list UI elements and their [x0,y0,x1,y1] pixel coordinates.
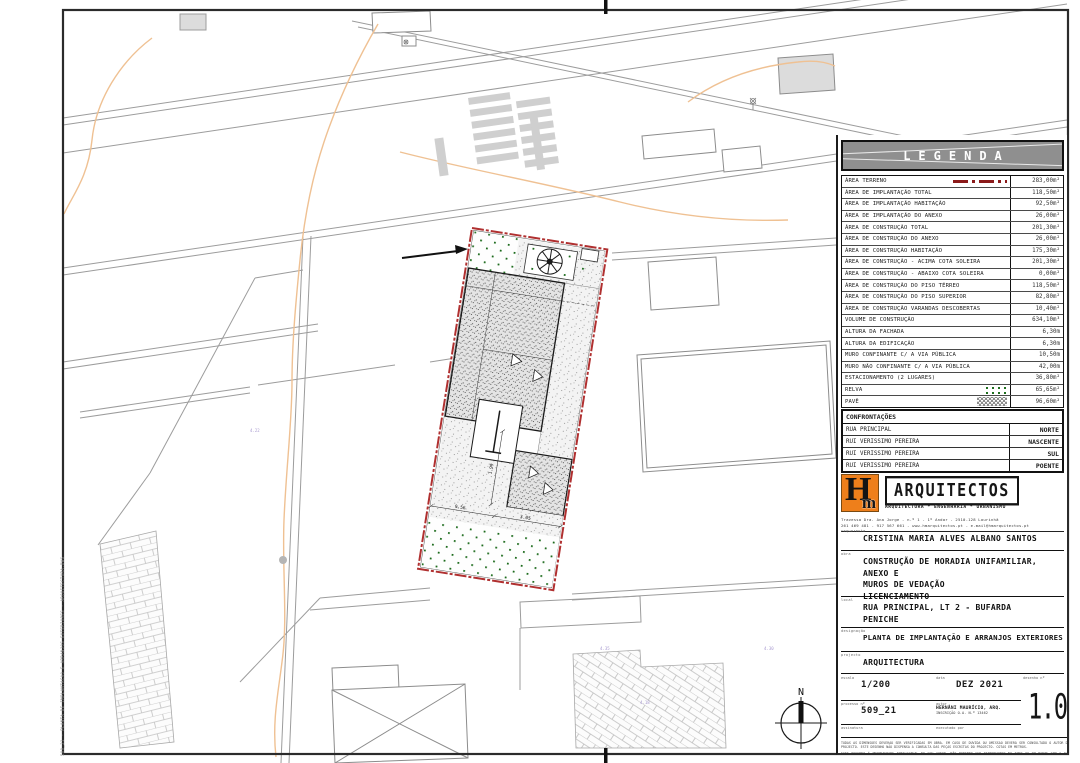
confrontacao-row: RUI VERISSIMO PEREIRANASCENTE [843,436,1062,448]
svg-text:4.30: 4.30 [764,646,774,651]
firm-tagline: ARQUITECTURA * ENGENHARIA * URBANISMO [885,505,1006,510]
legend-row: ÁREA DE IMPLANTAÇÃO TOTAL118,50m² [842,188,1063,200]
legend-row: ÁREA DE CONSTRUÇÃO - ACIMA COTA SOLEIRA2… [842,257,1063,269]
legend-row: ÁREA DE CONSTRUÇÃO VARANDAS DESCOBERTAS1… [842,304,1063,316]
svg-text:4.18: 4.18 [640,700,650,705]
confrontacao-row: RUI VERISSIMO PEREIRASUL [843,448,1062,460]
client-name: CRISTINA MARIA ALVES ALBANO SANTOS [841,533,1064,545]
project-type: ARQUITECTURA [841,657,1064,669]
hm-logo-icon: H m [841,474,879,512]
drawing-sheet: 9.56 3.05 1.99 4.22 4.35 4.18 4.30 N 509… [0,0,1080,763]
work-section: obra CONSTRUÇÃO DE MORADIA UNIFAMILIAR, … [841,552,1064,597]
legend-row: ÁREA TERRENO283,00m² [842,176,1063,188]
firm-logo: H m ARQUITECTOS ARQUITECTURA * ENGENHARI… [841,474,1064,516]
work-line1: CONSTRUÇÃO DE MORADIA UNIFAMILIAR, ANEXO… [841,556,1064,579]
legend-row: MURO NÃO CONFINANTE C/ A VIA PÚBLICA42,0… [842,362,1063,374]
file-stamp: 509_21 - PLANTA DE IMPLANTACAO E ARRANJO… [60,557,65,756]
legend-row: ÁREA DE CONSTRUÇÃO DO ANEXO26,00m² [842,234,1063,246]
location-section: local RUA PRINCIPAL, LT 2 - BUFARDA PENI… [841,598,1064,628]
drawing-title: PLANTA DE IMPLANTAÇÃO E ARRANJOS EXTERIO… [841,633,1064,642]
annex-footprint [507,451,572,516]
process-number: 509_21 [841,706,933,716]
legend-row: ÁREA DE IMPLANTAÇÃO DO ANEXO26,00m² [842,211,1063,223]
legend-row: ÁREA DE CONSTRUÇÃO DO PISO SUPERIOR82,80… [842,292,1063,304]
firm-name: ARQUITECTOS [885,476,1019,506]
legend-row: MURO CONFINANTE C/ A VIA PÚBLICA10,50m [842,350,1063,362]
author-registration: INSCRIÇÃO O.A. N.º 13462 [936,711,1021,715]
client-section: requerente CRISTINA MARIA ALVES ALBANO S… [841,529,1064,551]
front-grass [469,231,519,275]
address-line2: 261 469 481 - 917 567 661 - www.hmarquit… [841,523,1064,529]
project-section: projecto ARQUITECTURA [841,653,1064,674]
confrontacao-row: RUI VERISSIMO PEREIRAPOENTE [843,460,1062,471]
confrontacao-row: RUA PRINCIPALNORTE [843,424,1062,436]
fine-print-1: TODAS AS DIMENSÕES DEVERÃO SER VERIFICAD… [841,741,1069,749]
title-block: LEGENDA ÁREA TERRENO283,00m² ÁREA DE IMP… [836,135,1069,755]
legend-header: LEGENDA [841,140,1064,171]
svg-text:4.22: 4.22 [250,428,260,433]
legend-row: ALTURA DA FACHADA6,30m [842,327,1063,339]
crosswalk [434,87,559,177]
work-line2: MUROS DE VEDAÇÃO [841,579,1064,591]
north-label: N [798,687,804,698]
terreno-boundary-symbol [953,180,1007,183]
confrontacoes-title: CONFRONTAÇÕES [843,411,1062,424]
legend-row: ÁREA DE CONSTRUÇÃO HABITAÇÃO175,30m² [842,246,1063,258]
svg-text:4.35: 4.35 [600,646,610,651]
grass-symbol [985,386,1007,394]
fine-print: TODAS AS DIMENSÕES DEVERÃO SER VERIFICAD… [841,741,1069,755]
north-arrow-icon: N [775,687,827,749]
legend-row: ALTURA DA EDIFICAÇÃO6,30m [842,338,1063,350]
confrontacoes-table: CONFRONTAÇÕES RUA PRINCIPALNORTE RUI VER… [841,409,1064,473]
legend-row: ÁREA DE IMPLANTAÇÃO HABITAÇÃO92,50m² [842,199,1063,211]
meta-grid: escala 1/200 data DEZ 2021 desenho nº 1.… [841,675,1064,739]
date-value: DEZ 2021 [936,680,1021,690]
sheet-number: 1.00 [1028,686,1064,727]
location-line1: RUA PRINCIPAL, LT 2 - BUFARDA [841,602,1064,614]
legend-row: ÁREA DE CONSTRUÇÃO - ABAIXO COTA SOLEIRA… [842,269,1063,281]
entrance-arrow [402,245,468,258]
legend-row: ÁREA DE CONSTRUÇÃO DO PISO TÉRREO118,50m… [842,280,1063,292]
legend-row: ESTACIONAMENTO (2 LUGARES)36,80m² [842,373,1063,385]
location-line2: PENICHE [841,614,1064,626]
pave-hatch-symbol [977,397,1007,406]
legend-row: VOLUME DE CONSTRUÇÃO634,10m³ [842,315,1063,327]
legend-row: ÁREA DE CONSTRUÇÃO TOTAL201,30m² [842,222,1063,234]
fine-print-2: ESTE DESENHO É PROPRIEDADE INTELECTUAL D… [841,751,1069,755]
legend-row: RELVA65,65m² [842,385,1063,397]
manhole-icon [279,556,287,564]
scale-value: 1/200 [841,680,933,690]
gate [580,248,599,262]
legend-row: PAVÊ96,60m² [842,396,1063,407]
designation-section: designação PLANTA DE IMPLANTAÇÃO E ARRAN… [841,629,1064,652]
legend-table: ÁREA TERRENO283,00m² ÁREA DE IMPLANTAÇÃO… [841,175,1064,408]
lot: 9.56 3.05 1.99 [418,228,607,590]
